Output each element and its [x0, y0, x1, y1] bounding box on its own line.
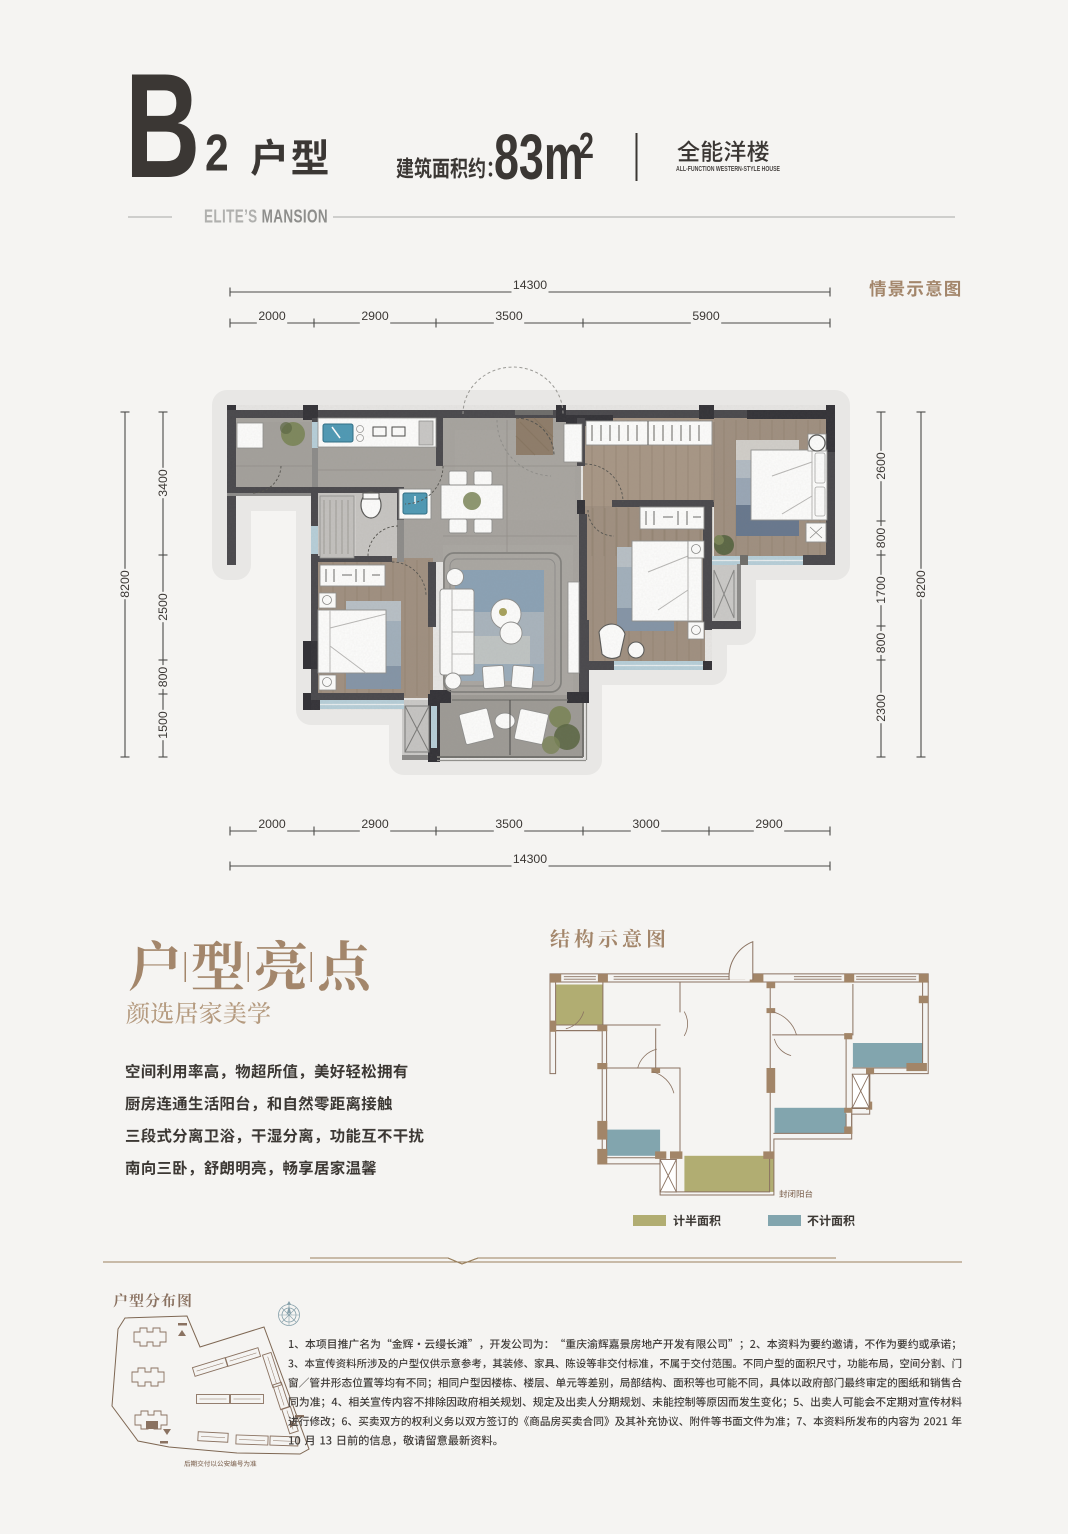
- svg-text:ALL-FUNCTION WESTERN-STYLE HOU: ALL-FUNCTION WESTERN-STYLE HOUSE: [676, 164, 780, 173]
- svg-text:1700: 1700: [874, 576, 888, 604]
- svg-text:800: 800: [156, 667, 170, 688]
- svg-text:5900: 5900: [692, 309, 720, 323]
- svg-text:8200: 8200: [914, 570, 928, 598]
- svg-text:2000: 2000: [258, 817, 286, 831]
- svg-text:2900: 2900: [755, 817, 783, 831]
- svg-text:2600: 2600: [874, 452, 888, 480]
- svg-text:14300: 14300: [513, 278, 547, 292]
- svg-text:2900: 2900: [361, 309, 389, 323]
- svg-text:800: 800: [874, 528, 888, 549]
- svg-text:800: 800: [874, 633, 888, 654]
- svg-text:2300: 2300: [874, 694, 888, 722]
- svg-text:3500: 3500: [495, 309, 523, 323]
- svg-text:2500: 2500: [156, 593, 170, 621]
- svg-text:14300: 14300: [513, 852, 547, 866]
- svg-text:1500: 1500: [156, 711, 170, 739]
- svg-text:2: 2: [205, 125, 229, 183]
- svg-text:B: B: [125, 44, 200, 210]
- svg-text:3500: 3500: [495, 817, 523, 831]
- svg-text:ELITE’S MANSION: ELITE’S MANSION: [204, 207, 328, 228]
- svg-text:3400: 3400: [156, 469, 170, 497]
- svg-text:83m: 83m: [494, 121, 584, 193]
- svg-text:2: 2: [579, 125, 594, 166]
- svg-text:3000: 3000: [632, 817, 660, 831]
- svg-text:8200: 8200: [118, 570, 132, 598]
- svg-text:2000: 2000: [258, 309, 286, 323]
- svg-text:2900: 2900: [361, 817, 389, 831]
